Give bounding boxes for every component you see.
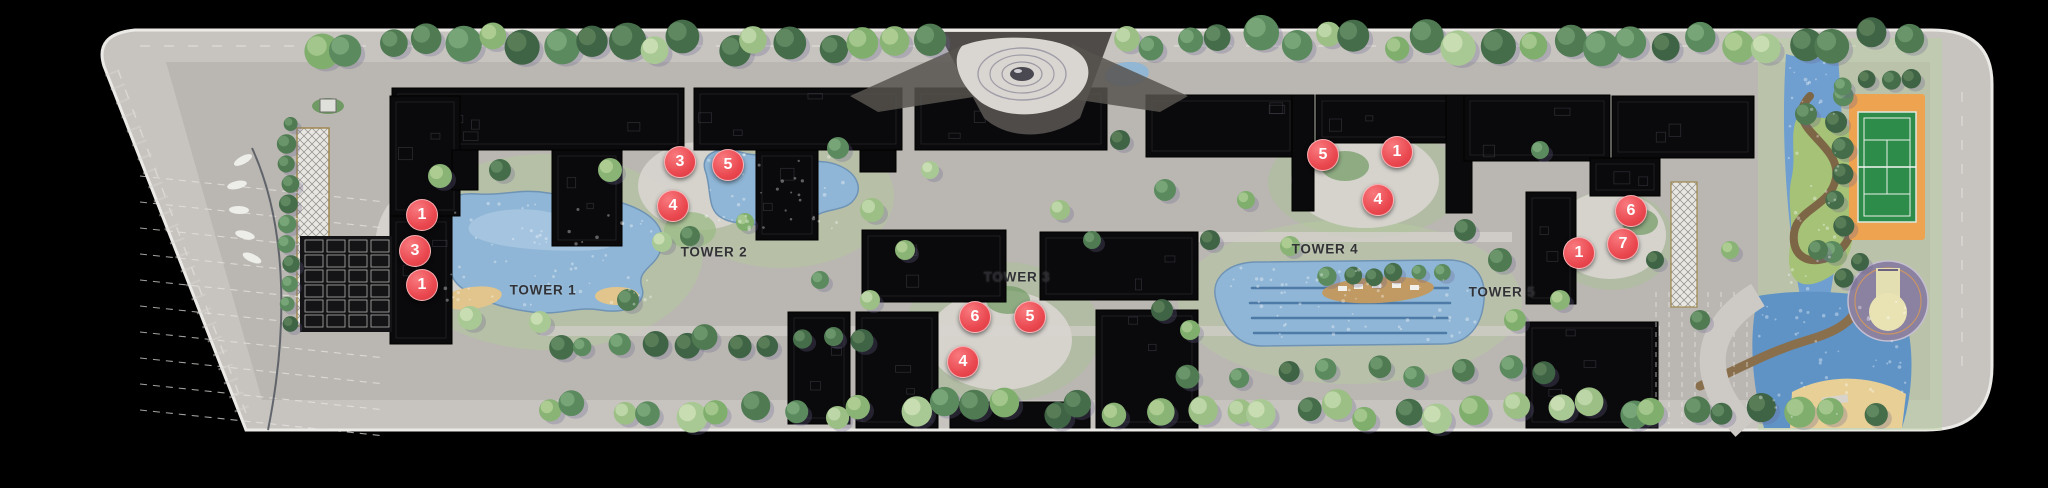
map-marker-1[interactable]: 1 — [1563, 237, 1595, 269]
map-marker-5[interactable]: 5 — [1307, 139, 1339, 171]
map-marker-7[interactable]: 7 — [1607, 228, 1639, 260]
map-marker-1[interactable]: 1 — [1381, 136, 1413, 168]
map-marker-3[interactable]: 3 — [664, 146, 696, 178]
tower-label-tower-1: TOWER 1 — [510, 283, 577, 298]
map-marker-4[interactable]: 4 — [657, 190, 689, 222]
tower-label-tower-2: TOWER 2 — [681, 245, 748, 260]
map-marker-6[interactable]: 6 — [959, 301, 991, 333]
map-marker-5[interactable]: 5 — [712, 149, 744, 181]
map-marker-5[interactable]: 5 — [1014, 301, 1046, 333]
site-plan-map: TOWER 1TOWER 2TOWER 3TOWER 4TOWER 513135… — [0, 0, 2048, 488]
map-marker-4[interactable]: 4 — [1362, 184, 1394, 216]
map-marker-4[interactable]: 4 — [947, 346, 979, 378]
tower-label-tower-4: TOWER 4 — [1292, 242, 1359, 257]
map-marker-1[interactable]: 1 — [406, 269, 438, 301]
tower-label-tower-5: TOWER 5 — [1469, 285, 1536, 300]
map-overlay: TOWER 1TOWER 2TOWER 3TOWER 4TOWER 513135… — [0, 0, 2048, 488]
map-marker-3[interactable]: 3 — [399, 235, 431, 267]
map-marker-6[interactable]: 6 — [1615, 195, 1647, 227]
tower-label-tower-3: TOWER 3 — [984, 270, 1051, 285]
map-marker-1[interactable]: 1 — [406, 199, 438, 231]
